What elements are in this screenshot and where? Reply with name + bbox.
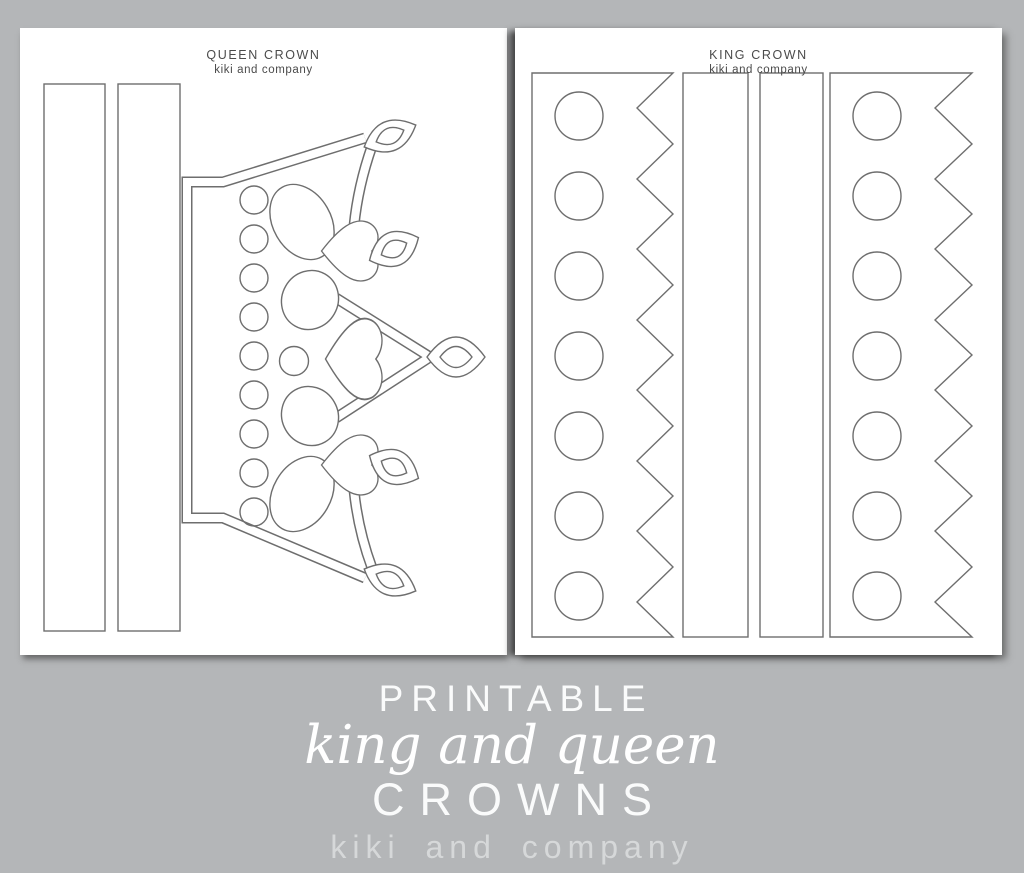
king-crown-strip-1 bbox=[532, 73, 673, 637]
queen-crown-page: QUEEN CROWN kiki and company bbox=[20, 28, 507, 655]
king-template-drawing bbox=[515, 28, 1002, 655]
caption-kiki-and-company: kiki and company bbox=[0, 831, 1024, 863]
king-headband-strip-2 bbox=[760, 73, 823, 637]
caption-printable: PRINTABLE bbox=[0, 680, 1024, 717]
queen-page-title: QUEEN CROWN bbox=[20, 48, 507, 62]
king-crown-strip-2 bbox=[830, 73, 972, 637]
caption-king-and-queen: king and queen bbox=[0, 719, 1024, 772]
caption-block: PRINTABLE king and queen CROWNS kiki and… bbox=[0, 680, 1024, 863]
king-strip-1-holes bbox=[555, 92, 603, 620]
king-page-subtitle: kiki and company bbox=[515, 64, 1002, 76]
queen-page-header: QUEEN CROWN kiki and company bbox=[20, 48, 507, 76]
queen-page-subtitle: kiki and company bbox=[20, 64, 507, 76]
queen-headband-strip-2 bbox=[118, 84, 180, 631]
queen-template-drawing bbox=[20, 28, 507, 655]
caption-crowns: CROWNS bbox=[0, 777, 1024, 822]
king-page-header: KING CROWN kiki and company bbox=[515, 48, 1002, 76]
printable-crowns-preview: QUEEN CROWN kiki and company bbox=[0, 0, 1024, 873]
queen-crown-shape bbox=[187, 111, 485, 604]
queen-headband-strip-1 bbox=[44, 84, 105, 631]
king-crown-page: KING CROWN kiki and company bbox=[515, 28, 1002, 655]
king-headband-strip-1 bbox=[683, 73, 748, 637]
king-page-title: KING CROWN bbox=[515, 48, 1002, 62]
king-strip-2-holes bbox=[853, 92, 901, 620]
queen-point-leaf-middle bbox=[427, 337, 485, 377]
